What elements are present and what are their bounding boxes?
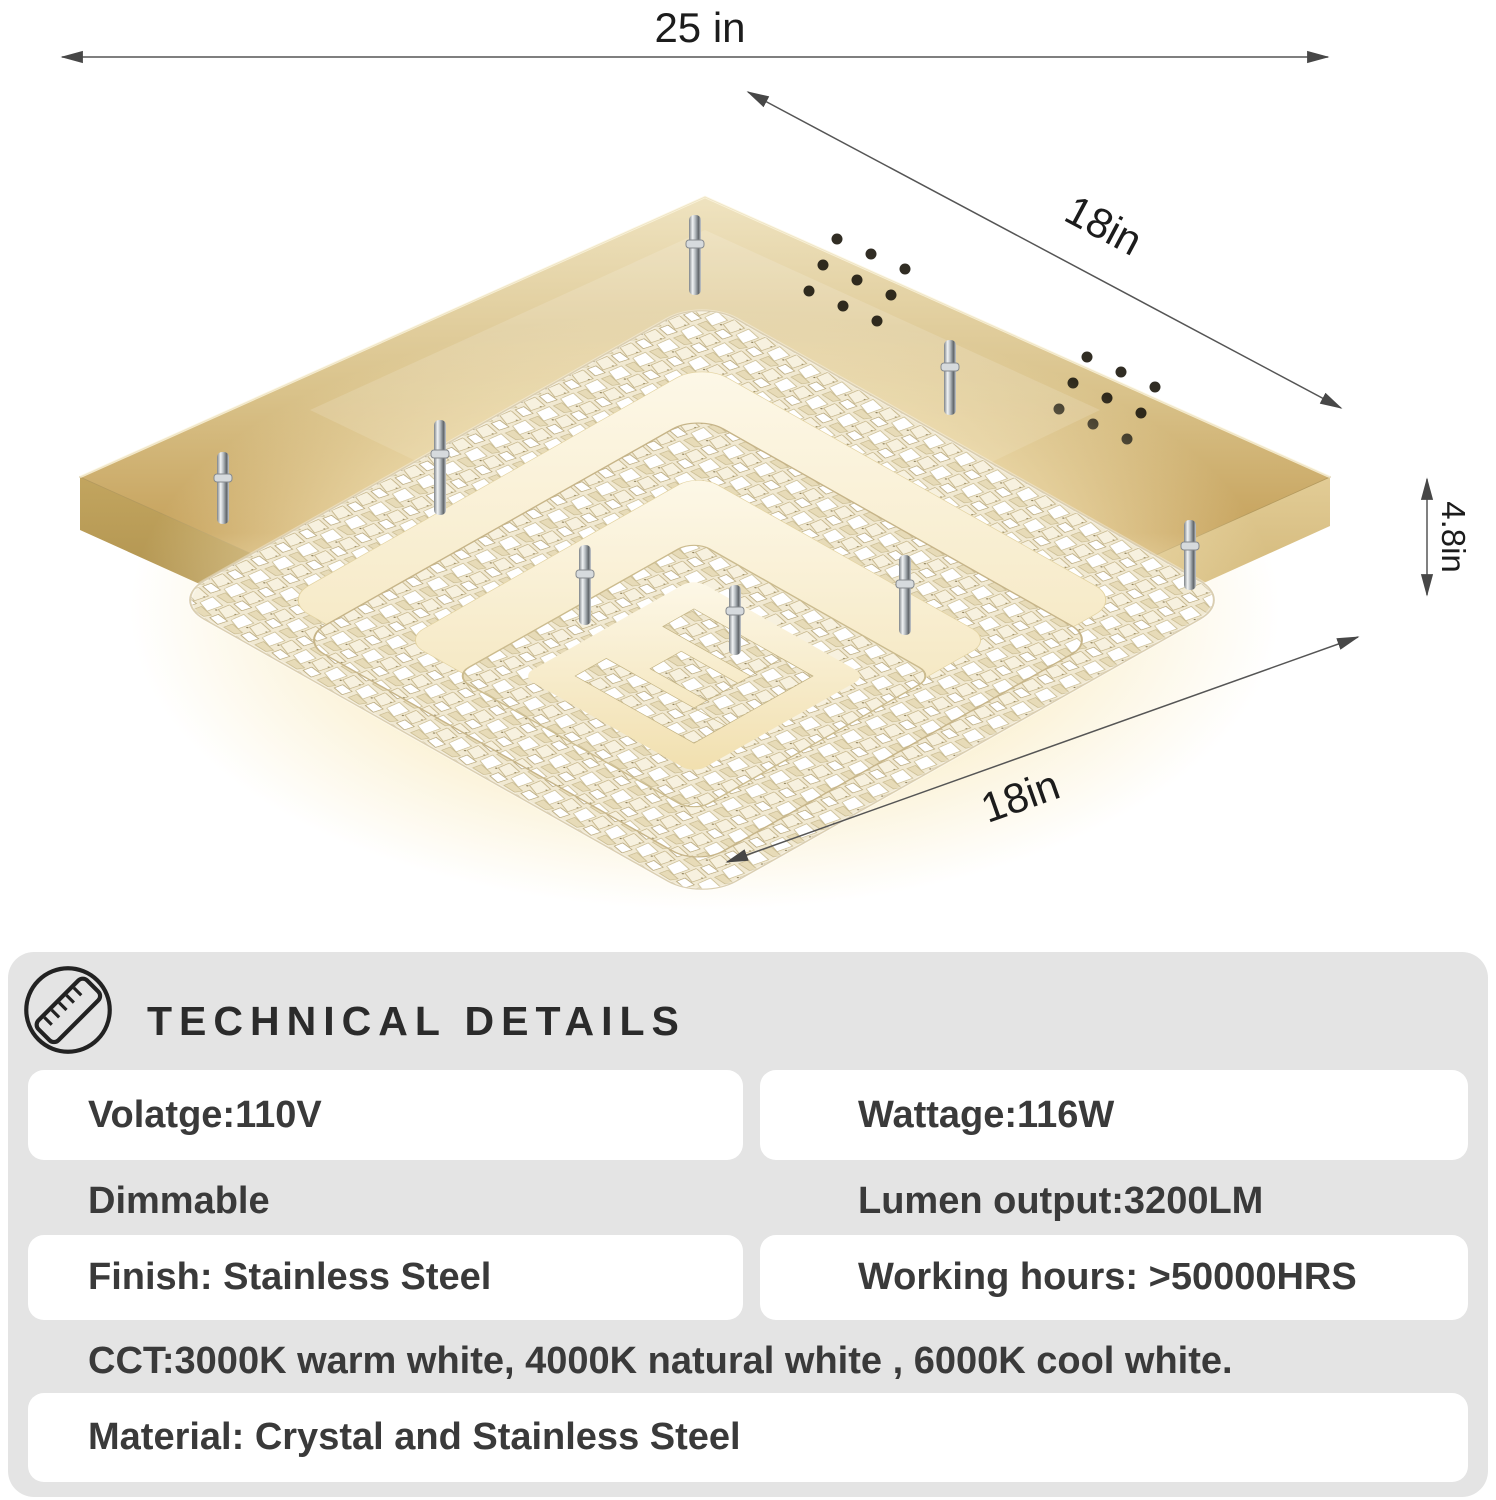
spec-card-wattage: Wattage:116W xyxy=(760,1070,1468,1160)
spec-cct: CCT:3000K warm white, 4000K natural whit… xyxy=(88,1340,1233,1383)
spec-finish: Finish: Stainless Steel xyxy=(88,1235,491,1320)
dimension-label-top-width: 25 in xyxy=(654,4,745,51)
spec-voltage: Volatge:110V xyxy=(88,1070,322,1160)
spec-working-hours: Working hours: >50000HRS xyxy=(858,1235,1357,1320)
spec-card-finish: Finish: Stainless Steel xyxy=(28,1235,743,1320)
spec-card-working-hours: Working hours: >50000HRS xyxy=(760,1235,1468,1320)
spec-card-voltage: Volatge:110V xyxy=(28,1070,743,1160)
ruler-icon xyxy=(20,962,116,1058)
panel-title: TECHNICAL DETAILS xyxy=(147,998,686,1045)
crystal-ceiling-light-photo xyxy=(80,197,1330,910)
ceiling-light-diagram: 25 in 18in 4.8in 18in xyxy=(0,0,1496,950)
product-infographic: 25 in 18in 4.8in 18in TECHNICAL DETAILS … xyxy=(0,0,1496,1500)
spec-card-material: Material: Crystal and Stainless Steel xyxy=(28,1393,1468,1482)
spec-wattage: Wattage:116W xyxy=(858,1070,1114,1160)
spec-dimmable: Dimmable xyxy=(88,1180,270,1223)
dimension-label-height: 4.8in xyxy=(1435,501,1472,573)
technical-details-panel: TECHNICAL DETAILS Volatge:110V Wattage:1… xyxy=(8,952,1488,1497)
spec-material: Material: Crystal and Stainless Steel xyxy=(88,1393,741,1482)
dimension-label-right-depth: 18in xyxy=(1058,186,1150,265)
spec-lumen-output: Lumen output:3200LM xyxy=(858,1180,1263,1223)
